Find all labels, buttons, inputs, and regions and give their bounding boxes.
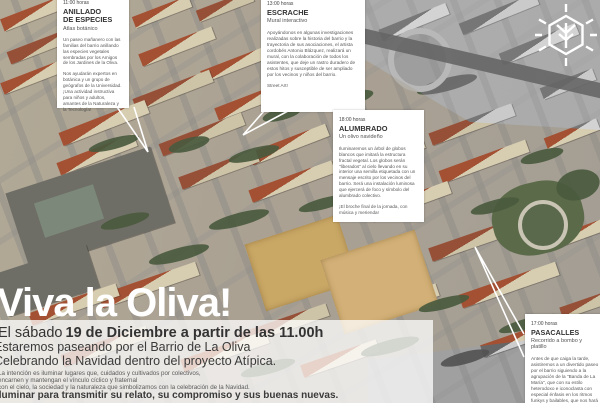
event-paragraph: Iluminaremos un árbol de globos blancos … — [339, 146, 418, 200]
event-subtitle: Un olivo navideño — [339, 134, 418, 140]
event-paragraph: ¡El broche final de la jornada, con músi… — [339, 204, 418, 216]
tree-snowflake-icon — [533, 3, 599, 69]
event-time: 13:00 horas — [267, 1, 359, 7]
event-title: ALUMBRADO — [339, 125, 418, 133]
event-subtitle: Atlas botánico — [63, 26, 123, 32]
map-building — [248, 124, 329, 166]
event-paragraph: Apoyándonos en algunas investigaciones r… — [267, 30, 359, 79]
callout-anillado: 11:00 horas ANILLADO DE ESPECIES Atlas b… — [57, 0, 129, 108]
event-title: PASACALLES — [531, 329, 599, 337]
event-paragraph: Un paseo mañanero con las familias del b… — [63, 37, 123, 66]
emphasis-line: Iluminar para transmitir su relato, su c… — [0, 390, 338, 401]
map-building — [196, 0, 254, 22]
tree-hexagon-logo — [533, 3, 599, 69]
event-title: ANILLADO DE ESPECIES — [63, 8, 115, 25]
event-title: ESCRACHE — [267, 9, 359, 17]
map-tree-cluster — [147, 240, 210, 269]
map-building — [138, 26, 215, 66]
map-building — [132, 0, 192, 28]
callout-escrache: 13:00 horas ESCRACHE Mural interactivo A… — [261, 0, 365, 112]
bottom-white-strip — [0, 403, 600, 411]
event-paragraph: Nos ayudarán expertos en botánica y un g… — [63, 71, 123, 112]
callout-pasacalles: 17:00 horas PASACALLES Recorrido a bombo… — [525, 314, 600, 411]
intro-line: Celebrando la Navidad dentro del proyect… — [0, 354, 276, 368]
map-building — [248, 160, 335, 202]
date-line-bold: 19 de Diciembre a partir de las 11.00h — [66, 325, 324, 341]
map-building — [439, 140, 530, 184]
callout-alumbrado: 18:00 horas ALUMBRADO Un olivo navideño … — [333, 110, 424, 222]
event-poster: 11:00 horas ANILLADO DE ESPECIES Atlas b… — [0, 0, 600, 411]
event-subtitle: Recorrido a bombo y platillo — [531, 338, 599, 351]
intro-line: Estaremos paseando por el Barrio de La O… — [0, 340, 250, 354]
date-line: El sábado19 de Diciembre a partir de las… — [0, 325, 323, 341]
map-tree-cluster — [207, 205, 270, 234]
date-line-prefix: El sábado — [0, 325, 63, 341]
detail-line: encarnen y mantengan el vínculo cíclico … — [0, 377, 137, 384]
poster-title: Viva la Oliva! — [0, 283, 231, 323]
detail-line: La intención es iluminar lugares que, cu… — [0, 370, 201, 377]
event-time: 17:00 horas — [531, 321, 599, 327]
event-time: 11:00 horas — [63, 0, 123, 6]
event-time: 18:00 horas — [339, 117, 418, 123]
event-subtitle: Mural interactivo — [267, 18, 359, 24]
map-building — [458, 262, 559, 308]
map-plaza-ring — [518, 200, 568, 250]
event-paragraph: Street Art! — [267, 83, 359, 89]
